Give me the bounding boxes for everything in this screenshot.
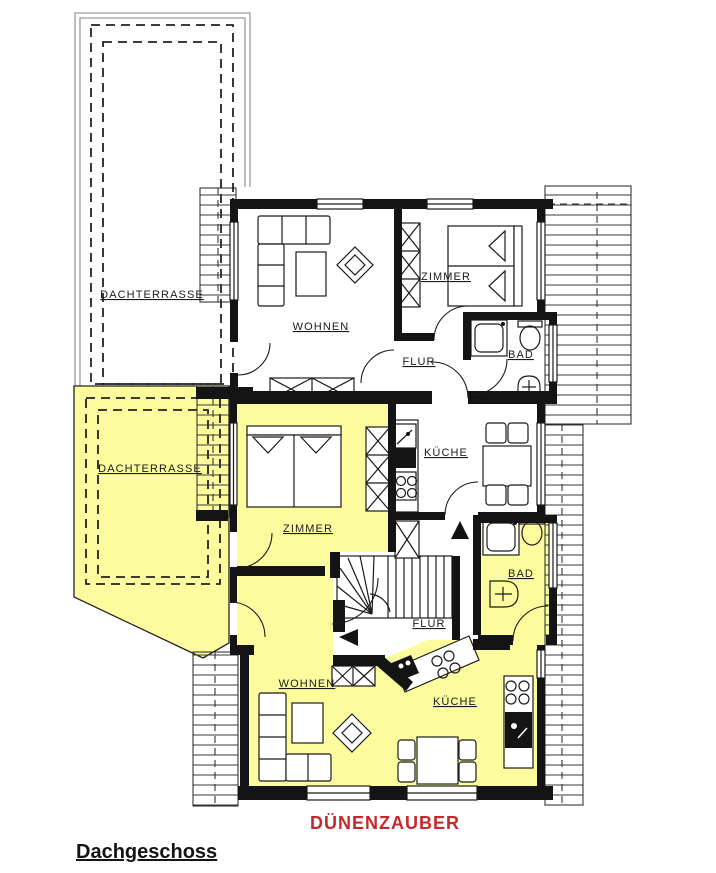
- window: [407, 786, 477, 800]
- room-label-living-lower: WOHNEN: [279, 678, 336, 690]
- window: [537, 650, 545, 678]
- window: [317, 199, 363, 209]
- room-label-living-upper: WOHNEN: [293, 321, 350, 333]
- room-label-kitchen-upper: KÜCHE: [424, 447, 468, 459]
- wardrobe-lower-bedroom: [366, 427, 390, 511]
- terrace-upper-label: DACHTERRASSE: [100, 289, 204, 301]
- bed-lower: [247, 426, 341, 507]
- dining-set-lower: [398, 737, 476, 784]
- room-label-bath-lower: BAD: [508, 568, 534, 580]
- window: [230, 423, 237, 505]
- kitchen-lower-wall-counter: [504, 676, 533, 768]
- coffee-table-upper: [296, 252, 326, 296]
- room-label-bedroom-lower: ZIMMER: [283, 523, 333, 535]
- window: [230, 222, 238, 300]
- room-label-hall-upper: FLUR: [402, 356, 435, 368]
- floor-title: Dachgeschoss: [76, 841, 217, 863]
- floorplan-page: DACHTERRASSE DACHTERRASSE: [0, 0, 716, 873]
- railing-strip-bottom-left: [193, 652, 238, 806]
- roof-hatch-right: [545, 186, 631, 805]
- window: [549, 325, 557, 382]
- apartment-name-label: DÜNENZAUBER: [310, 813, 460, 833]
- window: [537, 423, 545, 505]
- wardrobe-landing: [395, 521, 419, 558]
- room-label-kitchen-lower: KÜCHE: [433, 696, 477, 708]
- railing-strip-middle: [197, 386, 230, 517]
- window: [549, 523, 557, 588]
- dining-set-upper: [483, 423, 531, 505]
- terrace-lower-label: DACHTERRASSE: [98, 463, 202, 475]
- wardrobe-lower-living: [332, 666, 375, 686]
- room-label-bath-upper: BAD: [508, 349, 534, 361]
- armchair-upper: [337, 247, 373, 283]
- window: [427, 199, 473, 209]
- window: [307, 786, 370, 800]
- room-label-bedroom-upper: ZIMMER: [421, 271, 471, 283]
- window: [537, 222, 545, 300]
- room-label-hall-lower: FLUR: [412, 618, 445, 630]
- coffee-table-lower: [292, 703, 323, 743]
- bed-upper: [448, 226, 522, 306]
- floorplan-drawing: DACHTERRASSE DACHTERRASSE: [0, 0, 716, 873]
